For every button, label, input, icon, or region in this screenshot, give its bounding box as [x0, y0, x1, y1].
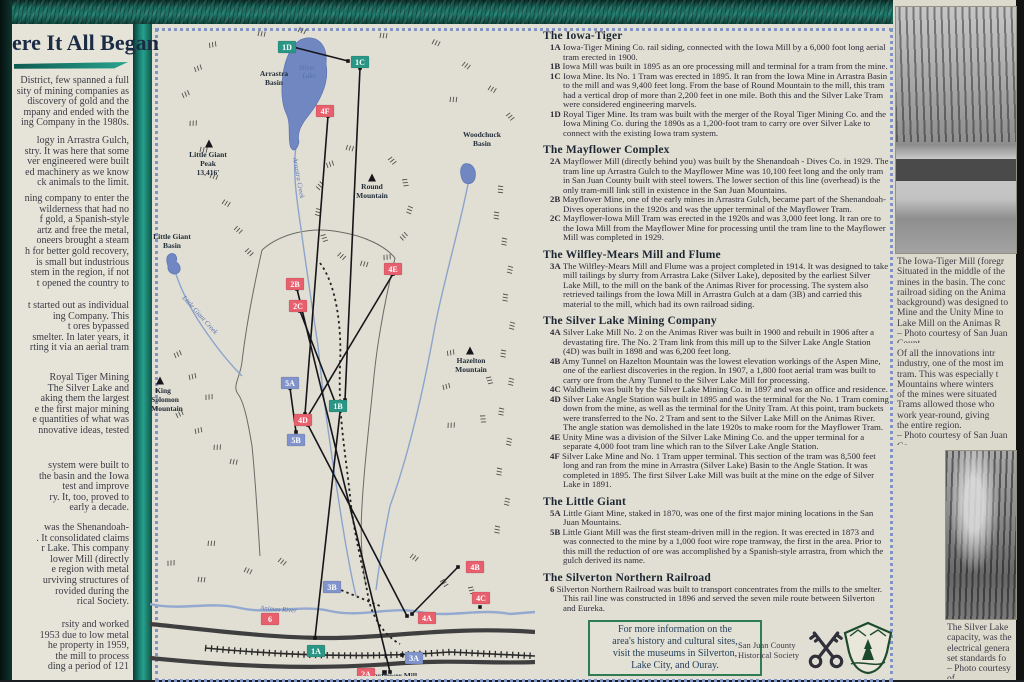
map-key-item: 4A Silver Lake Mill No. 2 on the Animas …: [537, 328, 889, 357]
svg-text:2B: 2B: [290, 280, 300, 289]
blm-arrowhead-logo: [842, 620, 894, 676]
svg-text:5A: 5A: [285, 379, 295, 388]
item-text: Mayflower Mine, one of the early mines i…: [562, 194, 885, 214]
svg-text:4F: 4F: [321, 107, 330, 116]
map-marker-4D: 4D: [294, 414, 312, 426]
mountain-hatch-marks: [166, 27, 515, 595]
photo-caption: The Silver Lake capacity, was the electr…: [947, 623, 1016, 679]
svg-text:4A: 4A: [422, 614, 432, 623]
left-paragraph: logy in Arrastra Gulch, stry. It was her…: [12, 136, 133, 189]
left-paragraph: Royal Tiger Mining The Silver Lake and a…: [12, 373, 133, 437]
item-label: 4D: [550, 394, 561, 404]
item-label: 1C: [550, 71, 561, 81]
sign-edge-right: [1016, 0, 1024, 680]
svg-text:3B: 3B: [327, 583, 337, 592]
map-key-item: 2A Mayflower Mill (directly behind you) …: [537, 157, 889, 195]
svg-text:Solomon: Solomon: [151, 395, 180, 404]
svg-text:Little Giant: Little Giant: [189, 150, 227, 159]
map-marker-4C: 4C: [472, 592, 490, 604]
section-title: The Iowa-Tiger: [543, 30, 889, 42]
info-box: For more information on the area's histo…: [588, 620, 762, 676]
svg-text:4D: 4D: [298, 416, 308, 425]
svg-text:6: 6: [268, 615, 272, 624]
svg-text:Lake: Lake: [301, 73, 315, 80]
woodchuck-lake: [461, 164, 476, 184]
map-marker-5B: 5B: [287, 434, 305, 446]
svg-text:Hazelton: Hazelton: [457, 356, 487, 365]
svg-text:Arrastra Creek: Arrastra Creek: [291, 156, 305, 200]
iowa-tiger-mill-photo: [895, 6, 1017, 254]
silver-lake-mill-photo: [945, 450, 1017, 620]
railroad-line: [205, 648, 535, 656]
svg-text:Silver: Silver: [299, 65, 315, 72]
map-marker-4A: 4A: [418, 612, 436, 624]
svg-text:Mountain: Mountain: [455, 365, 488, 374]
svg-text:Woodchuck: Woodchuck: [463, 130, 502, 139]
map-key-item: 6 Silverton Northern Railroad was built …: [537, 585, 889, 614]
item-label: 4C: [550, 384, 561, 394]
item-text: Silver Lake Mine and No. 1 Tram upper te…: [562, 451, 876, 490]
map-key-item: 1D Royal Tiger Mine. Its tram was built …: [537, 110, 889, 139]
sign-frame-top: [0, 0, 900, 24]
item-label: 3A: [550, 261, 561, 271]
map-marker-3B: 3B: [323, 581, 341, 593]
item-text: Unity Mine was a division of the Silver …: [562, 432, 864, 452]
map-marker-1D: 1D: [278, 41, 296, 53]
item-label: 4E: [550, 432, 560, 442]
map-marker-4F: 4F: [316, 105, 334, 117]
svg-text:Basin: Basin: [163, 241, 182, 250]
map-key-item: 3A The Wilfley-Mears Mill and Flume was …: [537, 262, 889, 310]
svg-text:King: King: [155, 386, 171, 395]
item-label: 5A: [550, 508, 561, 518]
map-key-item: 4B Amy Tunnel on Hazelton Mountain was t…: [537, 357, 889, 386]
site-squares: [288, 45, 482, 675]
section-title: The Wilfley-Mears Mill and Flume: [543, 249, 889, 261]
map-key-item: 4D Silver Lake Angle Station was built i…: [537, 395, 889, 433]
map-key-item: 1A Iowa-Tiger Mining Co. rail siding, co…: [537, 43, 889, 62]
svg-text:1D: 1D: [282, 43, 292, 52]
svg-text:13,416': 13,416': [197, 168, 220, 177]
road-upper: [150, 624, 535, 638]
item-text: Little Giant Mine, staked in 1870, was o…: [563, 508, 873, 528]
item-label: 6: [550, 584, 554, 594]
map-marker-2C: 2C: [289, 300, 307, 312]
sign-edge-left: [0, 0, 12, 680]
map-marker-2B: 2B: [286, 278, 304, 290]
svg-text:Little Giant: Little Giant: [153, 232, 191, 241]
right-column-paragraph: Of all the innovations intr industry, on…: [897, 349, 1016, 445]
page-title: ere It All Began: [12, 30, 129, 60]
little-giant-lake: [167, 254, 180, 274]
item-label: 2C: [550, 213, 561, 223]
map-marker-3A: 3A: [405, 652, 423, 664]
svg-text:4E: 4E: [388, 265, 397, 274]
section-title: The Silver Lake Mining Company: [543, 315, 889, 327]
map-key-item: 2B Mayflower Mine, one of the early mine…: [537, 195, 889, 214]
item-text: Mayflower-Iowa Mill Tram was erected in …: [563, 213, 886, 242]
photo-caption: The Iowa-Tiger Mill (foregr Situated in …: [897, 257, 1016, 343]
svg-text:3A: 3A: [409, 654, 419, 663]
map-key-sections: The Iowa-Tiger 1A Iowa-Tiger Mining Co. …: [537, 28, 889, 613]
map-marker-1B: 1B: [329, 400, 347, 412]
item-label: 4F: [550, 451, 560, 461]
item-label: 5B: [550, 527, 560, 537]
item-label: 1A: [550, 42, 561, 52]
svg-text:Round: Round: [361, 182, 384, 191]
item-text: Royal Tiger Mine. Its tram was built wit…: [563, 109, 886, 138]
item-text: Iowa Mine. Its No. 1 Tram was erected in…: [563, 71, 887, 110]
svg-text:2C: 2C: [293, 302, 303, 311]
section-title: The Silverton Northern Railroad: [543, 572, 889, 584]
map-marker-6: 6: [261, 613, 279, 625]
map-key-item: 5A Little Giant Mine, staked in 1870, wa…: [537, 509, 889, 528]
section-title: The Little Giant: [543, 496, 889, 508]
section-title: The Mayflower Complex: [543, 144, 889, 156]
map-marker-4E: 4E: [384, 263, 402, 275]
map-key-item: 4E Unity Mine was a division of the Silv…: [537, 433, 889, 452]
svg-text:Basin: Basin: [473, 139, 492, 148]
svg-text:4C: 4C: [476, 594, 486, 603]
map-key-item: 2C Mayflower-Iowa Mill Tram was erected …: [537, 214, 889, 243]
item-text: Amy Tunnel on Hazelton Mountain was the …: [562, 356, 881, 385]
svg-text:Little Giant Creek: Little Giant Creek: [180, 294, 219, 337]
info-box-text: For more information on the area's histo…: [612, 624, 737, 672]
map-marker-5A: 5A: [281, 377, 299, 389]
left-paragraph: rsity and worked 1953 due to low metal h…: [12, 620, 133, 673]
item-text: Silver Lake Angle Station was built in 1…: [563, 394, 889, 433]
road-lower: [150, 658, 535, 667]
left-paragraph: t started out as individual ing Company.…: [12, 301, 133, 354]
svg-text:1C: 1C: [355, 58, 365, 67]
animas-river-line: [150, 604, 535, 614]
svg-text:Mountain: Mountain: [151, 404, 184, 413]
item-label: 4A: [550, 327, 561, 337]
historical-society-credit: San Juan County Historical Society: [738, 640, 802, 660]
item-label: 2B: [550, 194, 560, 204]
map-marker-1A: 1A: [307, 645, 325, 657]
item-label: 1B: [550, 61, 560, 71]
svg-text:4B: 4B: [470, 563, 480, 572]
item-label: 1D: [550, 109, 561, 119]
svg-text:Mountain: Mountain: [356, 191, 389, 200]
item-text: Iowa Mill was built in 1895 as an ore pr…: [562, 61, 887, 71]
map-marker-2A: 2A: [357, 668, 375, 676]
item-label: 4B: [550, 356, 560, 366]
mining-map: Arrastra Basin Silver Lake Woodchuck Bas…: [150, 26, 535, 676]
item-text: Waldheim was built by the Silver Lake Mi…: [563, 384, 888, 394]
svg-text:Arrastra: Arrastra: [260, 69, 289, 78]
map-key-item: 1C Iowa Mine. Its No. 1 Tram was erected…: [537, 72, 889, 110]
left-paragraph: ning company to enter the wilderness tha…: [12, 194, 133, 289]
svg-text:Basin: Basin: [265, 78, 284, 87]
item-text: Silverton Northern Railroad was built to…: [557, 584, 882, 613]
item-text: Iowa-Tiger Mining Co. rail siding, conne…: [563, 42, 886, 62]
item-text: The Wilfley-Mears Mill and Flume was a p…: [563, 261, 888, 309]
svg-text:1B: 1B: [333, 402, 343, 411]
item-text: Little Giant Mill was the first steam-dr…: [562, 527, 883, 566]
left-paragraph: was the Shenandoah- . It consolidated cl…: [12, 523, 133, 608]
svg-text:1A: 1A: [311, 647, 321, 656]
map-key-item: 5B Little Giant Mill was the first steam…: [537, 528, 889, 566]
item-text: Mayflower Mill (directly behind you) was…: [563, 156, 889, 195]
map-marker-4B: 4B: [466, 561, 484, 573]
svg-text:5B: 5B: [291, 436, 301, 445]
map-marker-1C: 1C: [351, 56, 369, 68]
left-paragraph: system were built to the basin and the I…: [12, 461, 133, 514]
map-key-item: 4F Silver Lake Mine and No. 1 Tram upper…: [537, 452, 889, 490]
tram-lines: [290, 47, 458, 672]
item-label: 2A: [550, 156, 561, 166]
item-text: Silver Lake Mill No. 2 on the Animas Riv…: [563, 327, 874, 356]
svg-text:Peak: Peak: [200, 159, 217, 168]
left-paragraph: District, few spanned a full sity of min…: [12, 76, 133, 129]
svg-text:2A: 2A: [361, 670, 371, 676]
